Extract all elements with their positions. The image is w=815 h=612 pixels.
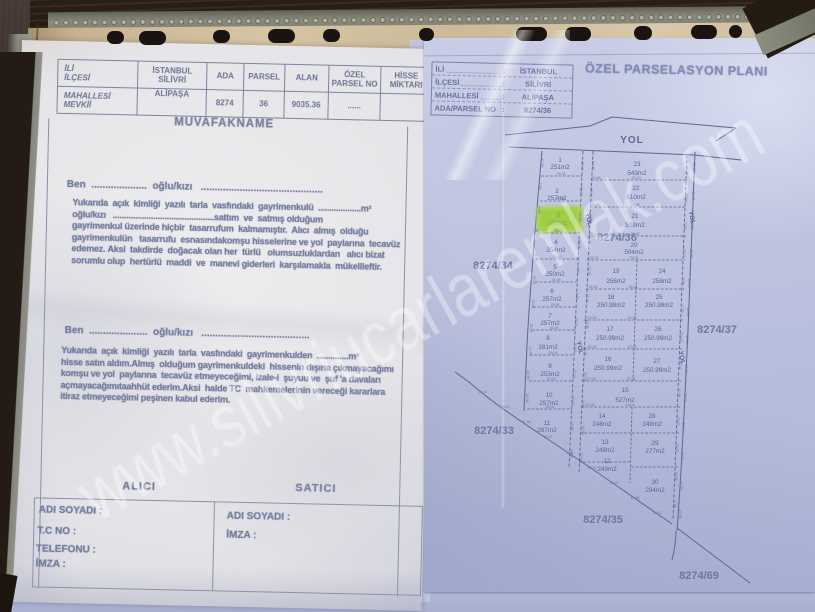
svg-text:24: 24: [658, 268, 666, 275]
svg-text:277m2: 277m2: [645, 448, 665, 455]
svg-text:8: 8: [546, 335, 550, 342]
svg-text:11.98: 11.98: [522, 420, 531, 424]
svg-text:8274/35: 8274/35: [583, 514, 623, 526]
svg-text:250.99m2: 250.99m2: [596, 335, 625, 342]
svg-text:25.02: 25.02: [676, 417, 680, 426]
svg-text:16: 16: [604, 356, 612, 363]
svg-text:25: 25: [655, 294, 663, 301]
svg-text:25.04: 25.04: [685, 336, 689, 345]
svg-text:19.96: 19.96: [631, 496, 640, 500]
svg-text:250.99m2: 250.99m2: [643, 367, 672, 374]
svg-text:25.04: 25.04: [550, 326, 559, 330]
svg-text:7.98: 7.98: [680, 306, 684, 313]
svg-text:10: 10: [545, 392, 553, 399]
svg-text:9.98: 9.98: [567, 451, 574, 455]
svg-text:19.98: 19.98: [585, 320, 589, 329]
svg-text:19.96: 19.96: [526, 371, 530, 380]
svg-text:19.98: 19.98: [581, 426, 585, 435]
svg-text:250.99m2: 250.99m2: [645, 302, 674, 309]
svg-text:26.04: 26.04: [629, 285, 638, 289]
svg-text:10.02: 10.02: [544, 435, 553, 439]
svg-text:25.00: 25.00: [610, 481, 619, 485]
svg-text:25.04: 25.04: [630, 256, 639, 260]
svg-text:25.04: 25.04: [572, 370, 576, 379]
svg-text:11.98: 11.98: [689, 250, 693, 259]
svg-text:25.00: 25.00: [653, 511, 662, 515]
svg-text:504m2: 504m2: [624, 249, 644, 256]
svg-text:7.98: 7.98: [538, 183, 542, 190]
svg-text:11: 11: [544, 420, 551, 427]
svg-text:10.02: 10.02: [684, 365, 688, 374]
svg-text:257m2: 257m2: [542, 296, 562, 303]
svg-text:12.50: 12.50: [588, 466, 597, 470]
svg-text:8274/69: 8274/69: [679, 570, 719, 582]
svg-text:248m2: 248m2: [595, 447, 615, 454]
svg-text:12.50: 12.50: [540, 159, 544, 168]
svg-text:9.98: 9.98: [575, 293, 579, 300]
svg-text:11.98: 11.98: [674, 472, 678, 481]
svg-text:29: 29: [651, 440, 659, 447]
svg-text:267m2: 267m2: [537, 427, 557, 434]
svg-text:249m2: 249m2: [597, 466, 617, 473]
svg-text:28: 28: [648, 413, 656, 420]
svg-text:9: 9: [548, 363, 552, 370]
svg-text:250.99m2: 250.99m2: [644, 335, 673, 342]
svg-text:25.04: 25.04: [628, 345, 637, 349]
svg-text:256m2: 256m2: [606, 278, 626, 285]
svg-text:19.96: 19.96: [677, 389, 681, 398]
svg-text:19.96: 19.96: [678, 510, 682, 519]
svg-text:25.04: 25.04: [681, 423, 685, 432]
svg-text:19.96: 19.96: [583, 347, 587, 356]
svg-text:19.98: 19.98: [679, 481, 683, 490]
svg-text:10.11: 10.11: [479, 390, 488, 394]
svg-text:10.02: 10.02: [580, 161, 584, 170]
svg-text:9.98: 9.98: [570, 424, 574, 431]
svg-text:25.04: 25.04: [678, 361, 682, 370]
svg-text:8274/33: 8274/33: [474, 425, 514, 437]
svg-text:19.96: 19.96: [583, 373, 587, 382]
svg-text:13: 13: [601, 439, 609, 446]
svg-text:7: 7: [548, 313, 552, 320]
svg-text:250.99m2: 250.99m2: [594, 365, 623, 372]
svg-text:25.06: 25.06: [683, 394, 687, 403]
svg-text:9.98: 9.98: [581, 401, 585, 408]
svg-text:25.00: 25.00: [501, 405, 510, 409]
svg-text:25.04: 25.04: [626, 403, 635, 407]
svg-text:10.02: 10.02: [675, 444, 679, 453]
svg-text:19.96: 19.96: [585, 294, 589, 303]
svg-text:18: 18: [607, 294, 615, 301]
svg-text:19.98: 19.98: [525, 394, 529, 403]
svg-text:10.11: 10.11: [687, 279, 691, 288]
svg-text:15: 15: [621, 387, 629, 394]
svg-text:25.04: 25.04: [588, 345, 597, 349]
svg-text:19.96: 19.96: [690, 221, 694, 230]
svg-text:258m2: 258m2: [652, 278, 672, 285]
svg-text:19.96: 19.96: [680, 452, 684, 461]
svg-text:25.04: 25.04: [529, 324, 533, 333]
svg-text:248m2: 248m2: [592, 421, 612, 428]
svg-text:25.02: 25.02: [586, 403, 595, 407]
svg-text:248m2: 248m2: [642, 421, 662, 428]
svg-text:10.11: 10.11: [573, 344, 577, 353]
svg-text:7.98: 7.98: [683, 223, 687, 230]
svg-text:250.99m2: 250.99m2: [597, 302, 626, 309]
svg-text:27: 27: [653, 358, 661, 365]
svg-text:294m2: 294m2: [645, 487, 665, 494]
svg-text:25.06: 25.06: [551, 303, 560, 307]
svg-text:10.11: 10.11: [579, 453, 583, 462]
svg-text:9.98: 9.98: [681, 278, 685, 285]
svg-text:25.02: 25.02: [682, 249, 686, 258]
svg-text:7.98: 7.98: [673, 501, 677, 508]
svg-text:26: 26: [654, 326, 662, 333]
svg-text:12.50: 12.50: [528, 347, 532, 356]
svg-text:10.02: 10.02: [679, 333, 683, 342]
svg-text:25.02: 25.02: [628, 316, 637, 320]
svg-text:1: 1: [558, 157, 562, 164]
svg-text:12: 12: [603, 458, 611, 465]
svg-text:25.02: 25.02: [547, 377, 556, 381]
svg-text:26.04: 26.04: [549, 351, 558, 355]
svg-text:17: 17: [606, 326, 614, 333]
svg-text:14: 14: [598, 413, 606, 420]
svg-text:25.04: 25.04: [557, 172, 566, 176]
svg-text:12.50: 12.50: [686, 308, 690, 317]
svg-text:281m2: 281m2: [538, 344, 558, 351]
svg-text:251m2: 251m2: [550, 164, 570, 171]
svg-text:24.96: 24.96: [627, 377, 636, 381]
svg-text:30: 30: [651, 479, 659, 486]
svg-text:25.04: 25.04: [546, 405, 555, 409]
svg-text:8274/37: 8274/37: [697, 324, 737, 336]
svg-text:19: 19: [612, 268, 620, 275]
svg-text:25.04: 25.04: [574, 318, 578, 327]
svg-text:10.02: 10.02: [571, 397, 575, 406]
svg-text:25.04: 25.04: [589, 285, 598, 289]
